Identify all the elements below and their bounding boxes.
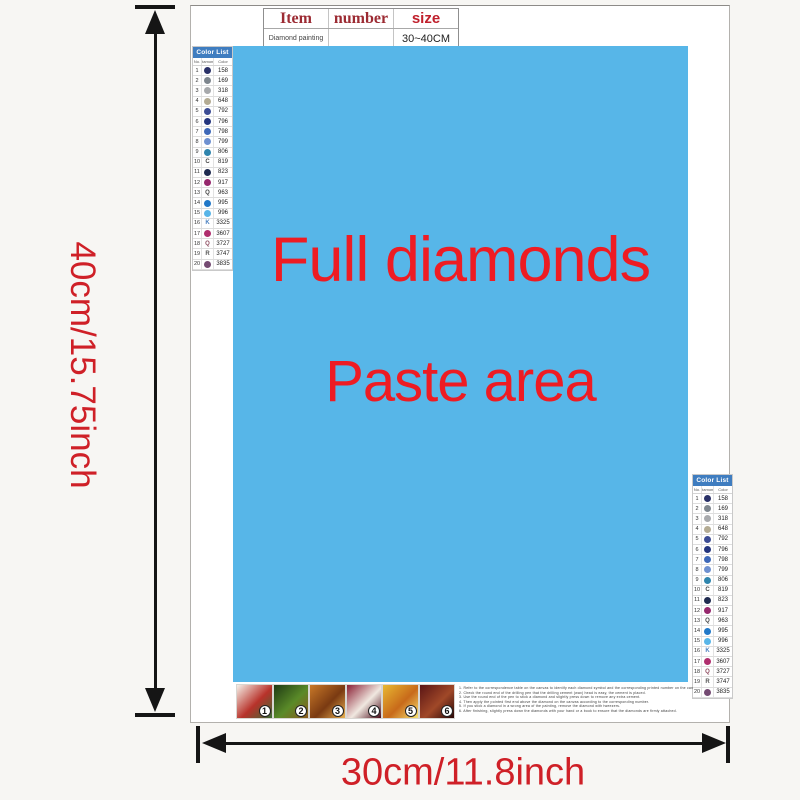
product-diagram: 40cm/15.75inch 30cm/11.8inch Item number… — [0, 0, 800, 800]
color-row: 8799 — [693, 565, 732, 575]
diamond-color-dot — [704, 526, 711, 533]
color-list-title: Color List — [193, 47, 232, 58]
color-row: 18Q3727 — [693, 667, 732, 677]
diamond-color-dot — [204, 138, 211, 145]
color-row: 11823 — [693, 596, 732, 606]
fine-print-line: 1. Refer to the correspondence table on … — [459, 686, 693, 691]
diamond-color-dot — [204, 230, 211, 237]
diamond-color-dot — [204, 118, 211, 125]
thumbnail-number-badge: 2 — [295, 705, 307, 717]
color-row-code: 796 — [214, 119, 232, 125]
h-arrow-right-cap — [726, 726, 730, 763]
color-row-number: 15 — [693, 637, 702, 646]
color-row: 11823 — [193, 168, 232, 178]
color-row: 14995 — [193, 198, 232, 208]
color-row-number: 12 — [193, 178, 202, 187]
color-row: 173607 — [193, 229, 232, 239]
color-row: 203835 — [693, 688, 732, 698]
diamond-color-dot — [704, 546, 711, 553]
color-row-symbol — [202, 229, 214, 238]
color-row-code: 796 — [714, 547, 732, 553]
color-row-number: 13 — [693, 616, 702, 625]
color-row-number: 16 — [693, 647, 702, 656]
color-row-symbol — [702, 535, 714, 544]
color-row-symbol — [702, 565, 714, 574]
color-row-number: 12 — [693, 606, 702, 615]
color-row-code: 996 — [214, 210, 232, 216]
color-row: 2169 — [193, 76, 232, 86]
spec-header-row: Item number size — [264, 9, 458, 29]
detail-thumbnail: 6 — [419, 684, 456, 719]
color-row-code: 963 — [214, 190, 232, 196]
color-row: 14995 — [693, 626, 732, 636]
color-row-number: 4 — [693, 525, 702, 534]
color-row-symbol: R — [202, 249, 214, 258]
diamond-color-dot — [204, 87, 211, 94]
diamond-color-dot — [204, 149, 211, 156]
color-row-code: 3835 — [214, 261, 232, 267]
diamond-color-dot — [704, 515, 711, 522]
diamond-color-dot — [704, 638, 711, 645]
color-row: 3318 — [693, 514, 732, 524]
v-arrow-top-cap — [135, 5, 175, 9]
color-row-code: 169 — [714, 506, 732, 512]
color-row: 15996 — [193, 209, 232, 219]
h-arrow-line — [222, 742, 706, 745]
color-row-number: 18 — [693, 667, 702, 676]
color-row-number: 9 — [693, 576, 702, 585]
color-row-number: 11 — [193, 168, 202, 177]
color-row-number: 14 — [693, 626, 702, 635]
color-list-column-diamond: Diamond — [702, 486, 714, 493]
color-row-symbol — [202, 137, 214, 146]
color-row-symbol — [702, 504, 714, 513]
detail-thumbnails: 123456 — [236, 684, 455, 719]
instructions-fine-print: 1. Refer to the correspondence table on … — [459, 686, 693, 714]
diamond-color-dot — [204, 210, 211, 217]
color-row-number: 8 — [693, 565, 702, 574]
color-row-number: 10 — [693, 586, 702, 595]
color-list-column-headers: No.DiamondColor — [693, 486, 732, 494]
color-row-code: 3607 — [714, 659, 732, 665]
color-row-code: 3747 — [214, 251, 232, 257]
color-row-code: 648 — [214, 98, 232, 104]
color-row-code: 3325 — [214, 220, 232, 226]
color-row-number: 9 — [193, 148, 202, 157]
color-row: 12917 — [193, 178, 232, 188]
color-row: 5792 — [693, 535, 732, 545]
fine-print-line: 6. After finishing, slightly press down … — [459, 709, 693, 714]
color-row-code: 158 — [714, 496, 732, 502]
color-row: 19R3747 — [693, 677, 732, 687]
color-row-symbol — [702, 555, 714, 564]
color-row-code: 3727 — [214, 241, 232, 247]
color-row-number: 20 — [193, 260, 202, 269]
color-row: 9806 — [193, 148, 232, 158]
color-row-code: 3727 — [714, 669, 732, 675]
color-row-code: 819 — [714, 587, 732, 593]
color-row-code: 318 — [714, 516, 732, 522]
color-row-number: 5 — [693, 535, 702, 544]
color-row-code: 917 — [214, 180, 232, 186]
color-row: 6796 — [693, 545, 732, 555]
color-row-number: 5 — [193, 107, 202, 116]
diamond-color-dot — [704, 577, 711, 584]
detail-thumbnail: 4 — [346, 684, 383, 719]
color-list-column-color: Color — [214, 58, 232, 65]
color-row-number: 1 — [193, 66, 202, 75]
color-list-column-headers: No.DiamondColor — [193, 58, 232, 66]
color-row-symbol — [702, 576, 714, 585]
color-row-symbol: Q — [202, 188, 214, 197]
color-row-code: 963 — [714, 618, 732, 624]
color-row-symbol — [702, 514, 714, 523]
color-row-code: 792 — [714, 536, 732, 542]
color-row: 12917 — [693, 606, 732, 616]
color-row-symbol — [202, 127, 214, 136]
thumbnail-number-badge: 4 — [368, 705, 380, 717]
color-row: 3318 — [193, 86, 232, 96]
spec-header-size: size — [393, 9, 458, 28]
color-row-code: 158 — [214, 68, 232, 74]
color-row-symbol: C — [702, 586, 714, 595]
color-row-code: 917 — [714, 608, 732, 614]
color-row-number: 3 — [193, 86, 202, 95]
color-row-symbol — [702, 657, 714, 666]
color-row-number: 17 — [193, 229, 202, 238]
diamond-color-dot — [704, 536, 711, 543]
color-row: 10C819 — [693, 586, 732, 596]
detail-thumbnail: 5 — [382, 684, 419, 719]
spec-table: Item number size Diamond painting 30~40C… — [263, 8, 459, 49]
color-row-number: 7 — [693, 555, 702, 564]
color-row-symbol — [702, 494, 714, 503]
color-row: 9806 — [693, 576, 732, 586]
color-row-number: 13 — [193, 188, 202, 197]
color-row-code: 798 — [714, 557, 732, 563]
color-row: 4648 — [693, 525, 732, 535]
color-row-symbol: K — [202, 219, 214, 228]
height-dimension-label: 40cm/15.75inch — [62, 241, 102, 488]
color-row-number: 2 — [693, 504, 702, 513]
color-row-symbol — [702, 688, 714, 697]
color-row: 15996 — [693, 637, 732, 647]
color-row-symbol — [702, 637, 714, 646]
color-row-symbol — [202, 209, 214, 218]
color-row-code: 996 — [714, 638, 732, 644]
color-row-code: 3835 — [714, 689, 732, 695]
color-row-number: 1 — [693, 494, 702, 503]
color-list-column-no: No. — [193, 58, 202, 65]
color-row-symbol — [202, 97, 214, 106]
color-row-symbol — [202, 198, 214, 207]
thumbnail-number-badge: 6 — [441, 705, 453, 717]
diamond-color-dot — [204, 200, 211, 207]
color-row: 5792 — [193, 107, 232, 117]
color-row-number: 14 — [193, 198, 202, 207]
color-row-code: 648 — [714, 526, 732, 532]
color-row-number: 8 — [193, 137, 202, 146]
diamond-color-dot — [204, 179, 211, 186]
v-arrow-line — [154, 30, 157, 690]
color-row-number: 16 — [193, 219, 202, 228]
color-row-code: 823 — [214, 169, 232, 175]
color-row-number: 17 — [693, 657, 702, 666]
color-row-code: 798 — [214, 129, 232, 135]
color-row-number: 19 — [193, 249, 202, 258]
color-row-symbol: Q — [702, 667, 714, 676]
spec-header-item: Item — [264, 9, 328, 28]
color-list-title: Color List — [693, 475, 732, 486]
color-row-code: 318 — [214, 88, 232, 94]
color-row: 19R3747 — [193, 249, 232, 259]
color-row-symbol — [202, 260, 214, 269]
color-row-symbol — [702, 545, 714, 554]
color-row: 10C819 — [193, 158, 232, 168]
diamond-color-dot — [704, 597, 711, 604]
h-arrow-right-head-icon — [702, 733, 726, 753]
color-row-symbol: C — [202, 158, 214, 167]
diamond-color-dot — [704, 495, 711, 502]
color-row: 173607 — [693, 657, 732, 667]
color-row: 18Q3727 — [193, 239, 232, 249]
diamond-color-dot — [704, 505, 711, 512]
v-arrow-down-head-icon — [145, 688, 165, 712]
v-arrow-bottom-cap — [135, 713, 175, 717]
color-list-left: Color ListNo.DiamondColor115821693318464… — [192, 46, 233, 271]
color-row-symbol — [202, 148, 214, 157]
color-row-number: 3 — [693, 514, 702, 523]
diamond-color-dot — [704, 689, 711, 696]
diamond-color-dot — [704, 607, 711, 614]
color-list-column-color: Color — [714, 486, 732, 493]
color-list-column-diamond: Diamond — [202, 58, 214, 65]
diamond-color-dot — [204, 67, 211, 74]
paste-area-title-line1: Full diamonds — [271, 224, 650, 296]
color-row-number: 7 — [193, 127, 202, 136]
color-row-symbol — [202, 178, 214, 187]
color-row-code: 792 — [214, 108, 232, 114]
color-row-code: 995 — [714, 628, 732, 634]
color-row-code: 995 — [214, 200, 232, 206]
thumbnail-number-badge: 3 — [332, 705, 344, 717]
color-row: 8799 — [193, 137, 232, 147]
color-row: 203835 — [193, 260, 232, 270]
color-row-symbol — [702, 626, 714, 635]
color-row-symbol: R — [702, 677, 714, 686]
color-row: 6796 — [193, 117, 232, 127]
color-row-symbol — [702, 596, 714, 605]
color-row-number: 10 — [193, 158, 202, 167]
diamond-color-dot — [704, 556, 711, 563]
color-row: 16K3325 — [193, 219, 232, 229]
color-row-code: 799 — [714, 567, 732, 573]
color-row-number: 15 — [193, 209, 202, 218]
detail-thumbnail: 3 — [309, 684, 346, 719]
h-arrow-left-cap — [196, 726, 200, 763]
color-row-symbol — [202, 117, 214, 126]
diamond-color-dot — [204, 169, 211, 176]
color-row-number: 18 — [193, 239, 202, 248]
color-row-number: 19 — [693, 677, 702, 686]
color-list-column-no: No. — [693, 486, 702, 493]
color-row: 7798 — [193, 127, 232, 137]
color-row-code: 799 — [214, 139, 232, 145]
detail-thumbnail: 2 — [273, 684, 310, 719]
color-row-symbol — [202, 86, 214, 95]
diamond-color-dot — [204, 128, 211, 135]
color-row: 1158 — [193, 66, 232, 76]
detail-thumbnail: 1 — [236, 684, 273, 719]
color-row-symbol: Q — [202, 239, 214, 248]
color-row-code: 823 — [714, 597, 732, 603]
color-row-code: 3607 — [214, 231, 232, 237]
color-row: 1158 — [693, 494, 732, 504]
color-row-number: 6 — [693, 545, 702, 554]
thumbnail-number-badge: 1 — [259, 705, 271, 717]
thumbnail-number-badge: 5 — [405, 705, 417, 717]
color-row: 13Q963 — [193, 188, 232, 198]
paste-area: Full diamonds Paste area — [233, 46, 688, 682]
color-row-symbol: K — [702, 647, 714, 656]
width-dimension-label: 30cm/11.8inch — [341, 752, 585, 795]
paste-area-title-line2: Paste area — [325, 348, 596, 415]
color-row-number: 6 — [193, 117, 202, 126]
color-row-code: 3325 — [714, 648, 732, 654]
color-row-symbol — [702, 606, 714, 615]
diamond-color-dot — [204, 77, 211, 84]
diamond-color-dot — [704, 628, 711, 635]
color-row-symbol: Q — [702, 616, 714, 625]
color-row-number: 2 — [193, 76, 202, 85]
color-row-symbol — [202, 66, 214, 75]
diamond-color-dot — [704, 658, 711, 665]
spec-header-number: number — [328, 9, 393, 28]
diamond-color-dot — [204, 98, 211, 105]
color-row-symbol — [202, 107, 214, 116]
color-row-code: 806 — [714, 577, 732, 583]
color-row-code: 819 — [214, 159, 232, 165]
canvas-poster: Item number size Diamond painting 30~40C… — [190, 5, 730, 723]
color-row-symbol — [202, 168, 214, 177]
color-row-number: 11 — [693, 596, 702, 605]
color-row-code: 3747 — [714, 679, 732, 685]
diamond-color-dot — [204, 108, 211, 115]
color-row-number: 4 — [193, 97, 202, 106]
color-list-right: Color ListNo.DiamondColor115821693318464… — [692, 474, 733, 699]
color-row: 4648 — [193, 97, 232, 107]
diamond-color-dot — [204, 261, 211, 268]
color-row: 16K3325 — [693, 647, 732, 657]
color-row-symbol — [202, 76, 214, 85]
diamond-color-dot — [704, 566, 711, 573]
color-row-code: 806 — [214, 149, 232, 155]
color-row: 7798 — [693, 555, 732, 565]
color-row-code: 169 — [214, 78, 232, 84]
color-row-number: 20 — [693, 688, 702, 697]
color-row: 2169 — [693, 504, 732, 514]
color-row: 13Q963 — [693, 616, 732, 626]
color-row-symbol — [702, 525, 714, 534]
